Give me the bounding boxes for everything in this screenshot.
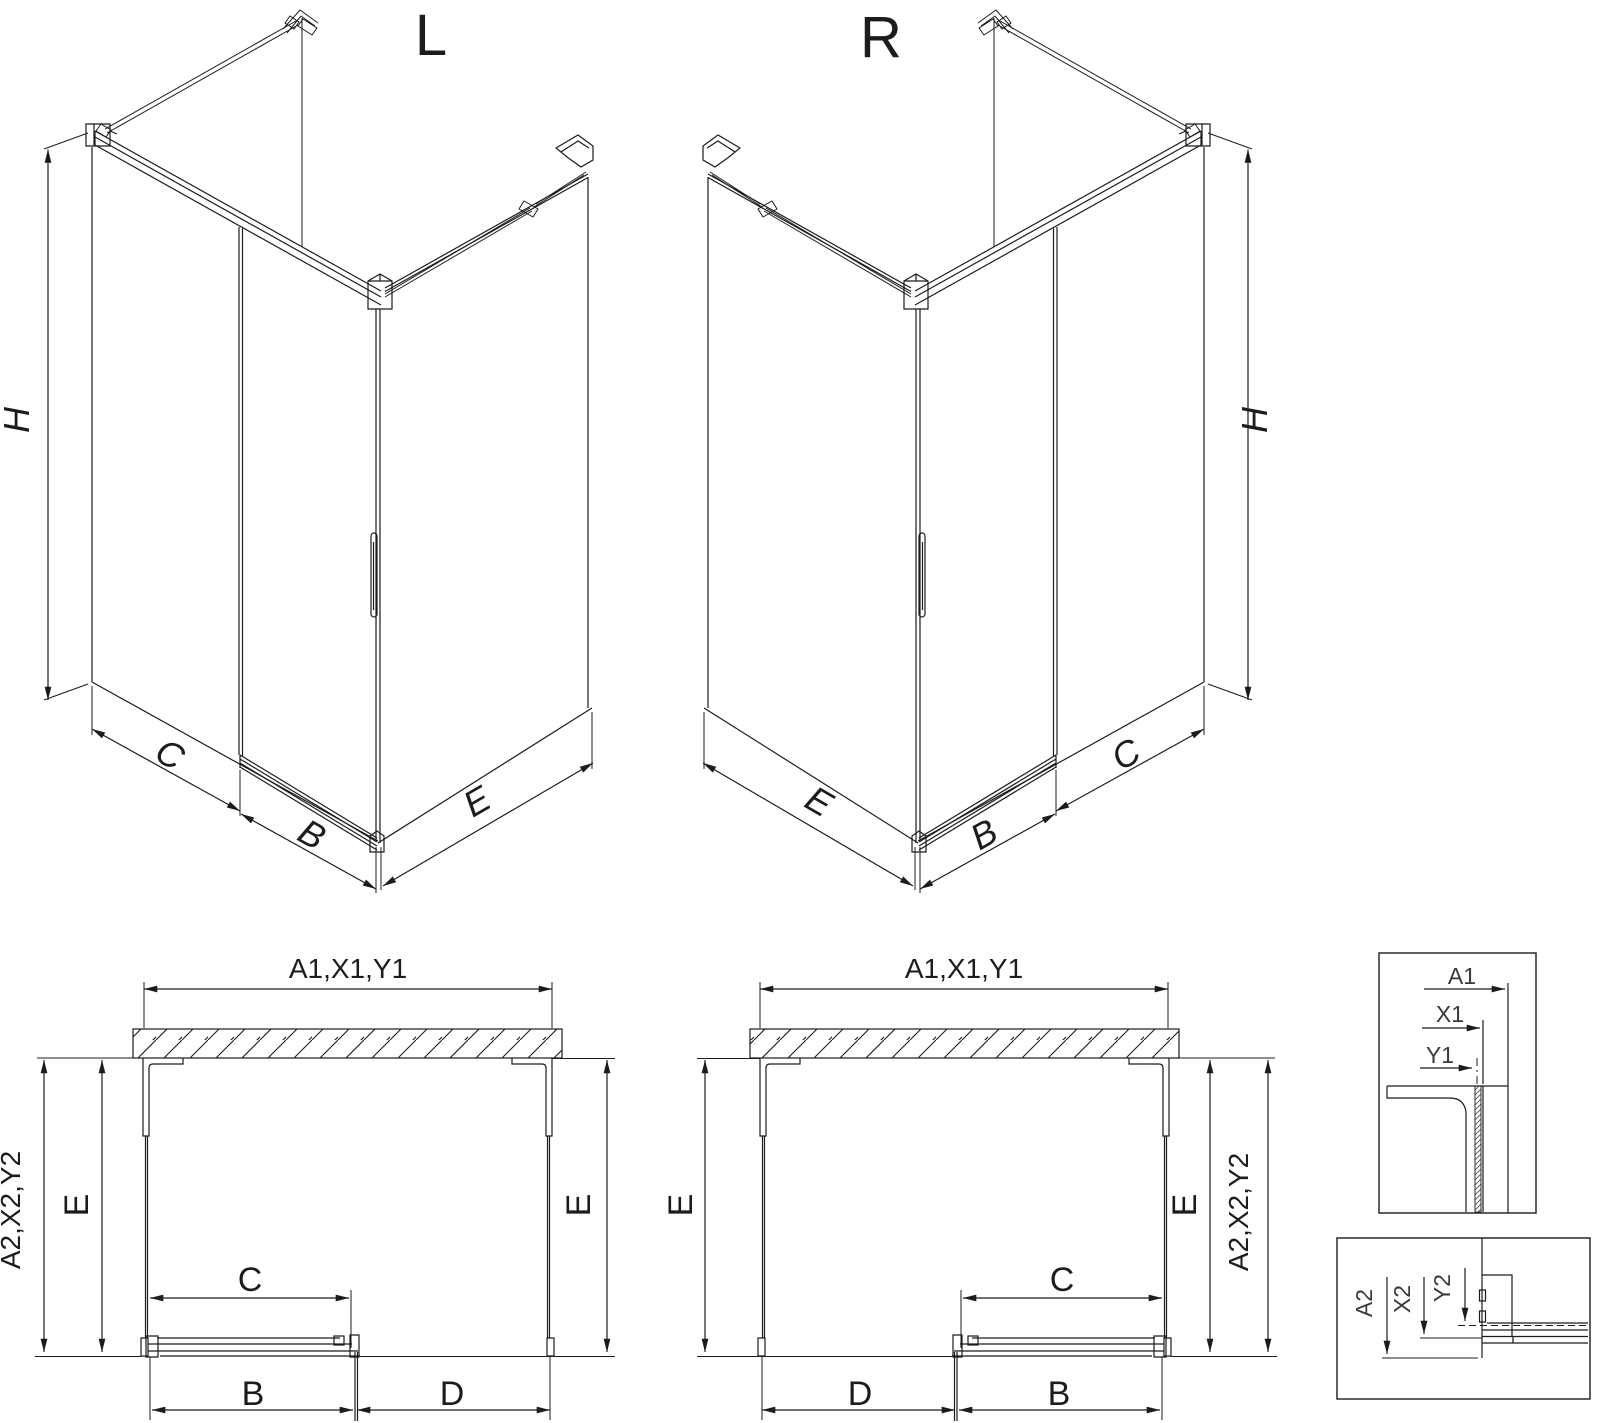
detail-depth-frame: [1337, 1238, 1590, 1399]
iso-right-dim-height-label: H: [1234, 406, 1275, 433]
plan-right-dim-depth-right-label: E: [1166, 1194, 1204, 1217]
plan-right-dim-depth-left-label: E: [662, 1194, 700, 1217]
detail-width-frame: [1379, 953, 1536, 1213]
iso-right-title: R: [860, 5, 902, 70]
detail-width-label-a: A1: [1448, 963, 1476, 989]
plan-right-dim-width-label: A1,X1,Y1: [905, 953, 1023, 984]
iso-left-dim-height-label: H: [0, 406, 37, 433]
plan-right-dim-door-label: B: [1048, 1375, 1071, 1413]
plan-left-dim-depth-outer-label: A2,X2,Y2: [0, 1151, 26, 1269]
plan-left-dim-door-label: B: [242, 1375, 265, 1413]
detail-depth-label-x: X2: [1389, 1285, 1415, 1313]
plan-right-dim-fixed-label: C: [1050, 1261, 1075, 1299]
detail-depth-label-a: A2: [1351, 1289, 1377, 1317]
detail-depth-extension-lines: [1382, 1338, 1482, 1358]
iso-right-dim-side-label: E: [799, 777, 841, 825]
iso-left-dim-door-label: B: [292, 810, 333, 858]
plan-right-dim-depth-outer-label: A2,X2,Y2: [1223, 1153, 1254, 1271]
detail-depth-label-y: Y2: [1429, 1274, 1455, 1302]
iso-left-dim-fixed-label: C: [149, 730, 193, 779]
iso-left-title: L: [415, 3, 447, 68]
detail-width-label-y: Y1: [1426, 1042, 1454, 1068]
detail-width-wall-section: [1387, 1086, 1508, 1212]
detail-depth-profile-section: [1480, 1275, 1589, 1343]
detail-width-label-x: X1: [1436, 1001, 1464, 1027]
iso-left-dim-side-label: E: [456, 777, 498, 825]
technical-drawing-sheet: L H C B E R H C B E A1,X1,Y1 A2,X2,Y2 E …: [0, 0, 1600, 1423]
plan-left-dim-depth-right-label: E: [560, 1194, 598, 1217]
plan-left-dim-fixed-label: C: [238, 1261, 263, 1299]
plan-left-dim-depth-left-label: E: [58, 1194, 96, 1217]
detail-view-depth: A2 X2 Y2: [1337, 1238, 1590, 1399]
iso-right-dim-fixed-label: C: [1104, 729, 1148, 778]
detail-width-profile-lines: [1483, 983, 1508, 1213]
plan-view-right: A1,X1,Y1 A2,X2,Y2 E E C B D: [662, 953, 1277, 1421]
plan-view-left: A1,X1,Y1 A2,X2,Y2 E E C B D: [0, 953, 615, 1421]
plan-left-dim-width-label: A1,X1,Y1: [289, 953, 407, 984]
plan-right-dim-opening-label: D: [848, 1375, 873, 1413]
iso-view-left: L H C B E: [0, 3, 593, 893]
plan-right-wall-hatch: [750, 1029, 1179, 1058]
iso-view-right: R H C B E: [703, 5, 1275, 893]
iso-right-dim-door-label: B: [963, 810, 1004, 858]
detail-width-glass-section: [1475, 1086, 1481, 1212]
plan-left-wall-hatch: [133, 1029, 562, 1058]
shower-enclosure-drawing: L H C B E R H C B E A1,X1,Y1 A2,X2,Y2 E …: [0, 0, 1600, 1423]
detail-view-width: A1 X1 Y1: [1379, 953, 1536, 1213]
plan-left-dim-opening-label: D: [440, 1375, 465, 1413]
